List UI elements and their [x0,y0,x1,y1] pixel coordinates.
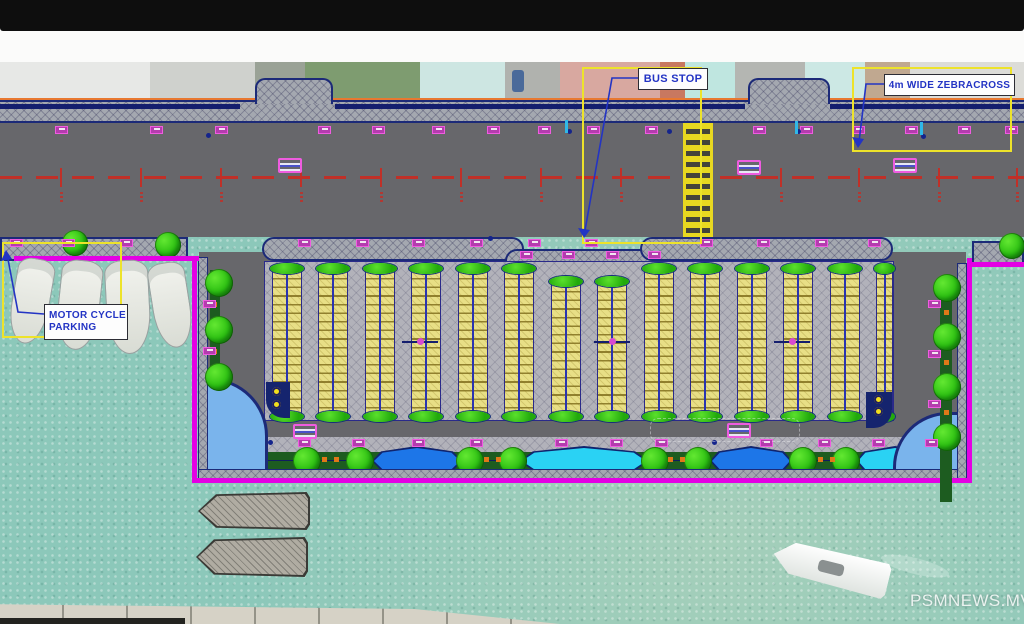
zebracross-label-text: 4m WIDE ZEBRACROSS [889,80,1011,91]
site-plan-canvas: BUS STOP 4m WIDE ZEBRACROSS MOTOR CYCLE … [0,62,1024,624]
psmnews-watermark: PSMNEWS.MV [910,591,1024,611]
annotation-leader-lines [0,62,1024,624]
bus-stop-label: BUS STOP [638,68,708,90]
motorcycle-parking-label-line1: MOTOR CYCLE [49,310,126,323]
zebracross-label: 4m WIDE ZEBRACROSS [884,74,1015,96]
news-image-site-plan: BUS STOP 4m WIDE ZEBRACROSS MOTOR CYCLE … [0,0,1024,624]
motorcycle-parking-label-line2: PARKING [49,322,96,335]
motorcycle-parking-label: MOTOR CYCLE PARKING [44,304,128,340]
bus-stop-label-text: BUS STOP [644,73,702,85]
top-black-bar [0,0,1024,31]
drawing-margin-strip [0,31,1024,63]
